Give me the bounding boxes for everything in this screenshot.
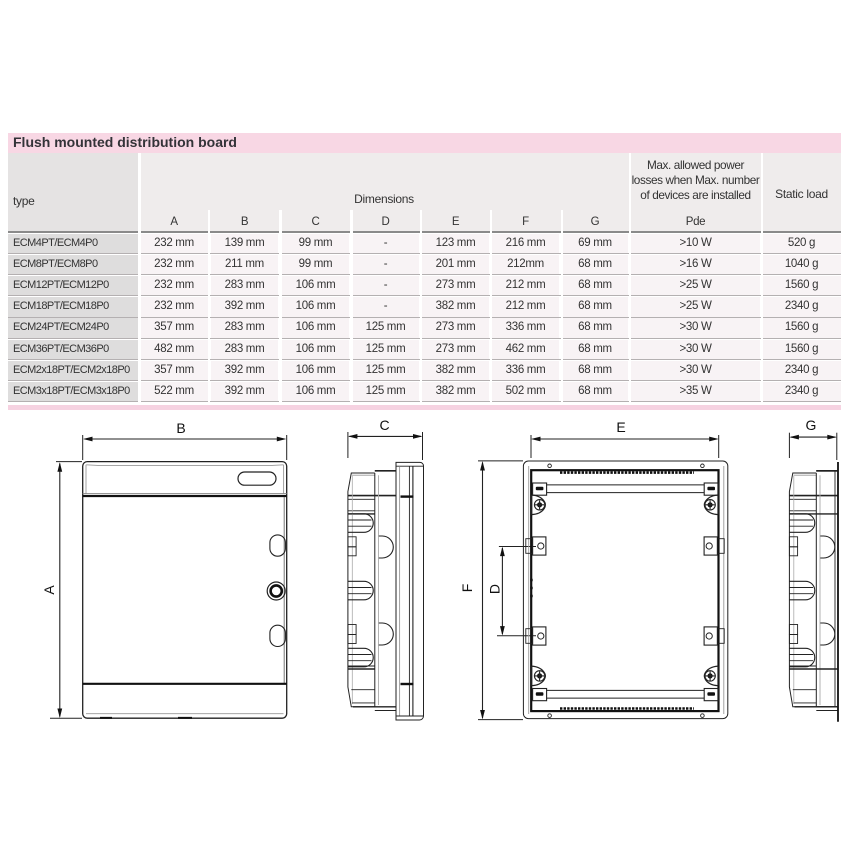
svg-text:F: F [459,584,475,593]
svg-text:G: G [806,417,817,433]
svg-text:C: C [379,417,389,433]
svg-text:B: B [176,420,185,436]
svg-text:D: D [487,584,503,594]
svg-text:A: A [41,585,57,595]
svg-text:E: E [616,419,625,435]
